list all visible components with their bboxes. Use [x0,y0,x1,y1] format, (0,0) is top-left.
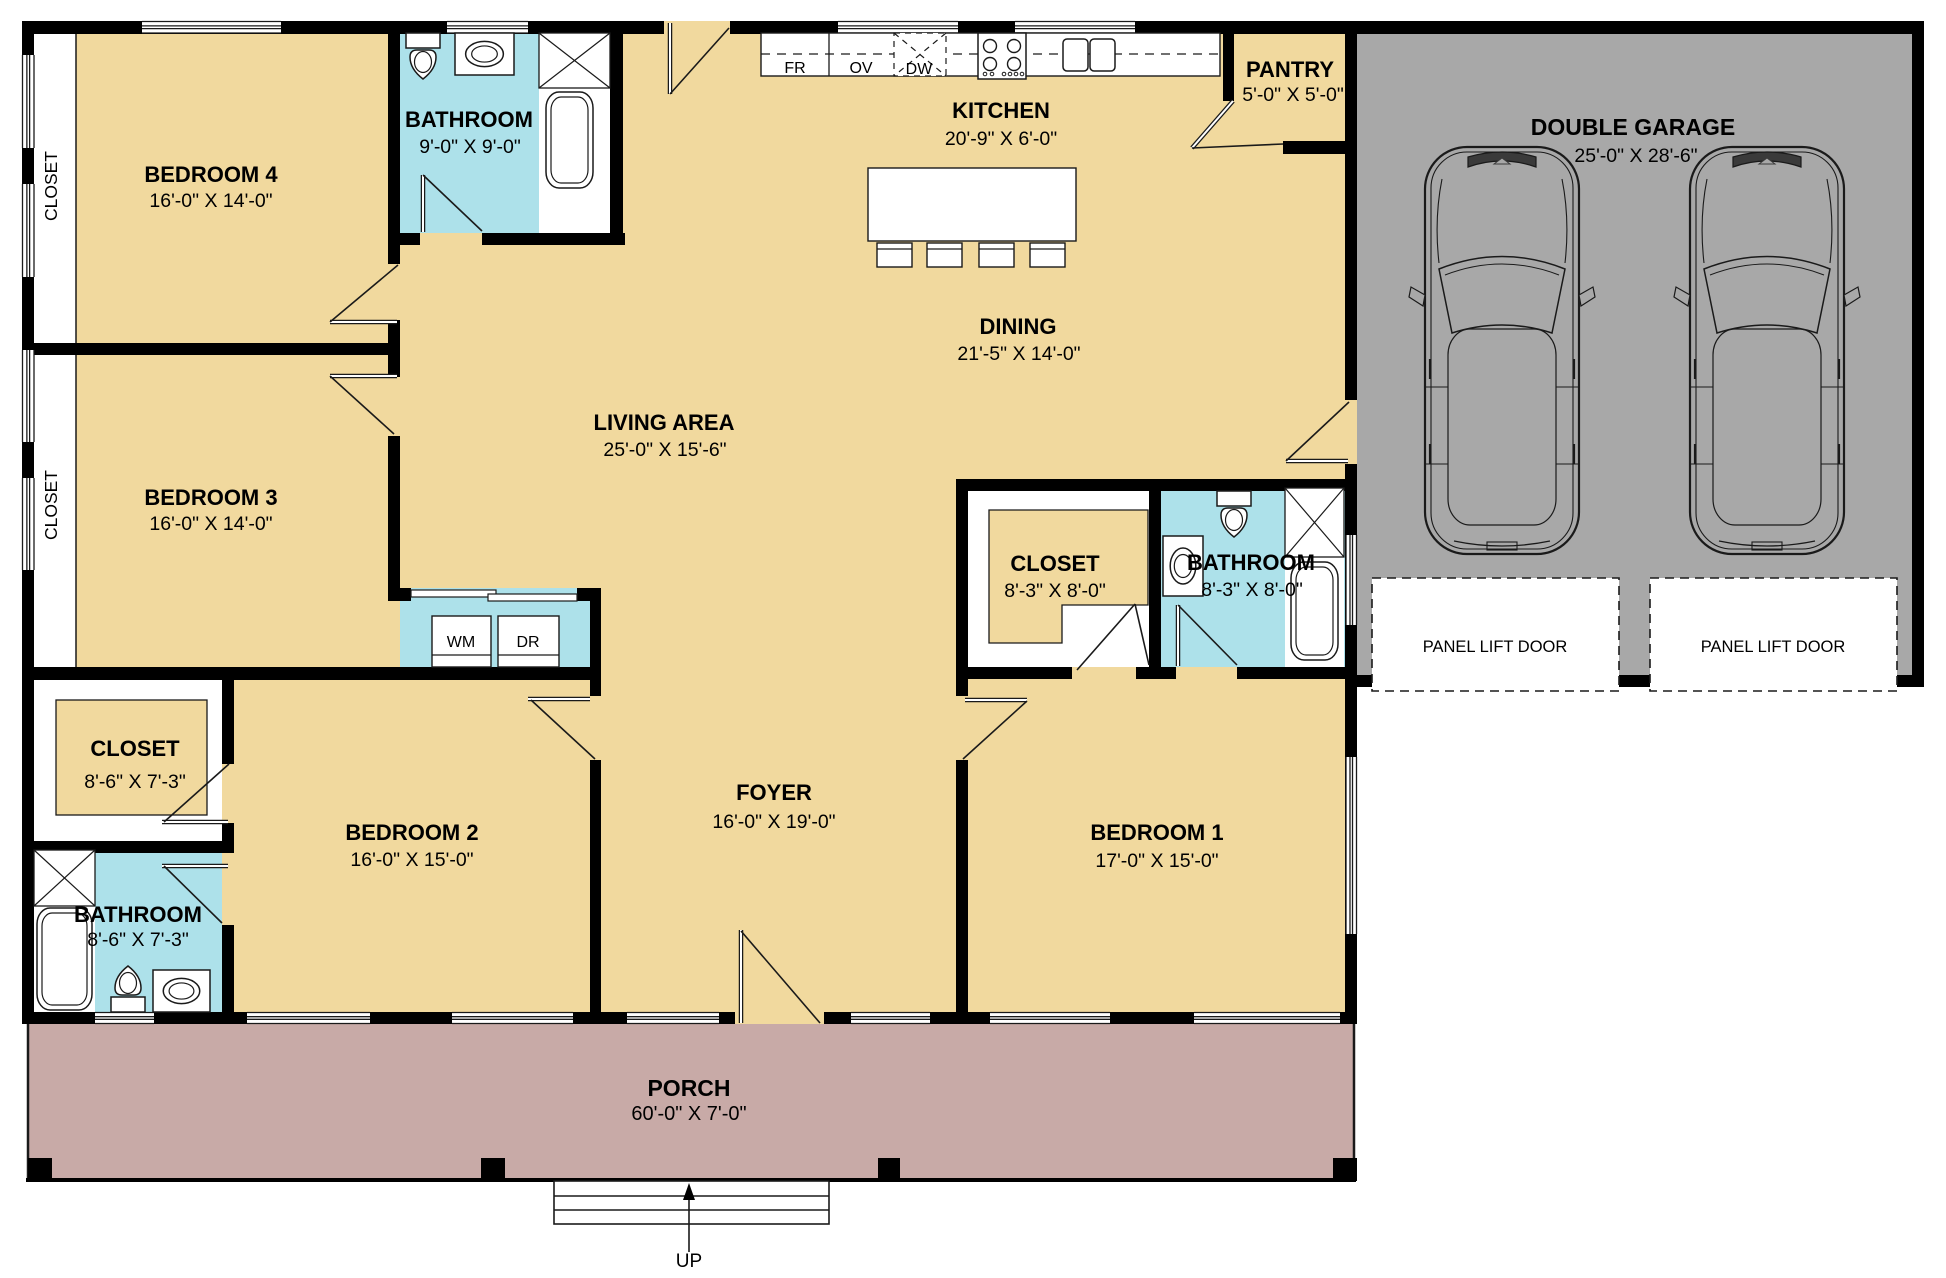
svg-text:8'-6" X 7'-3": 8'-6" X 7'-3" [87,929,189,951]
svg-text:UP: UP [676,1251,702,1272]
svg-text:PANTRY: PANTRY [1246,57,1334,82]
svg-text:CLOSET: CLOSET [90,736,180,761]
svg-text:CLOSET: CLOSET [41,151,61,221]
svg-text:FR: FR [784,60,805,77]
svg-text:60'-0" X 7'-0": 60'-0" X 7'-0" [631,1103,746,1125]
svg-text:DOUBLE GARAGE: DOUBLE GARAGE [1531,114,1735,140]
svg-text:BEDROOM 1: BEDROOM 1 [1090,820,1223,845]
svg-text:16'-0" X 14'-0": 16'-0" X 14'-0" [149,513,272,535]
svg-text:FOYER: FOYER [736,780,812,805]
svg-text:BATHROOM: BATHROOM [74,902,202,927]
svg-text:16'-0" X 19'-0": 16'-0" X 19'-0" [712,811,835,833]
svg-text:8'-3" X 8'-0": 8'-3" X 8'-0" [1004,580,1106,602]
svg-text:BEDROOM 3: BEDROOM 3 [144,485,277,510]
svg-text:16'-0" X 15'-0": 16'-0" X 15'-0" [350,849,473,871]
svg-text:9'-0" X 9'-0": 9'-0" X 9'-0" [419,136,521,158]
svg-text:DR: DR [516,634,539,651]
svg-text:WM: WM [447,634,475,651]
svg-text:CLOSET: CLOSET [41,470,61,540]
svg-text:25'-0" X 15'-6": 25'-0" X 15'-6" [603,439,726,461]
svg-text:BATHROOM: BATHROOM [1187,550,1315,575]
svg-text:8'-3" X 8'-0": 8'-3" X 8'-0" [1201,579,1303,601]
svg-text:BATHROOM: BATHROOM [405,107,533,132]
svg-text:KITCHEN: KITCHEN [952,98,1050,123]
svg-text:20'-9" X 6'-0": 20'-9" X 6'-0" [945,128,1057,150]
svg-text:DINING: DINING [980,314,1057,339]
svg-text:25'-0" X 28'-6": 25'-0" X 28'-6" [1574,145,1697,167]
svg-text:CLOSET: CLOSET [1010,551,1100,576]
svg-text:16'-0" X 14'-0": 16'-0" X 14'-0" [149,190,272,212]
svg-text:17'-0" X 15'-0": 17'-0" X 15'-0" [1095,850,1218,872]
svg-text:PORCH: PORCH [647,1075,730,1101]
svg-text:BEDROOM 4: BEDROOM 4 [144,162,278,187]
svg-text:DW: DW [906,61,934,78]
svg-text:BEDROOM 2: BEDROOM 2 [345,820,478,845]
svg-text:21'-5" X 14'-0": 21'-5" X 14'-0" [957,343,1080,365]
svg-text:PANEL LIFT DOOR: PANEL LIFT DOOR [1701,638,1846,656]
svg-text:OV: OV [849,60,872,77]
svg-text:5'-0" X 5'-0": 5'-0" X 5'-0" [1242,84,1344,106]
svg-text:8'-6" X 7'-3": 8'-6" X 7'-3" [84,771,186,793]
svg-text:LIVING AREA: LIVING AREA [594,410,735,435]
svg-text:PANEL LIFT DOOR: PANEL LIFT DOOR [1423,638,1568,656]
